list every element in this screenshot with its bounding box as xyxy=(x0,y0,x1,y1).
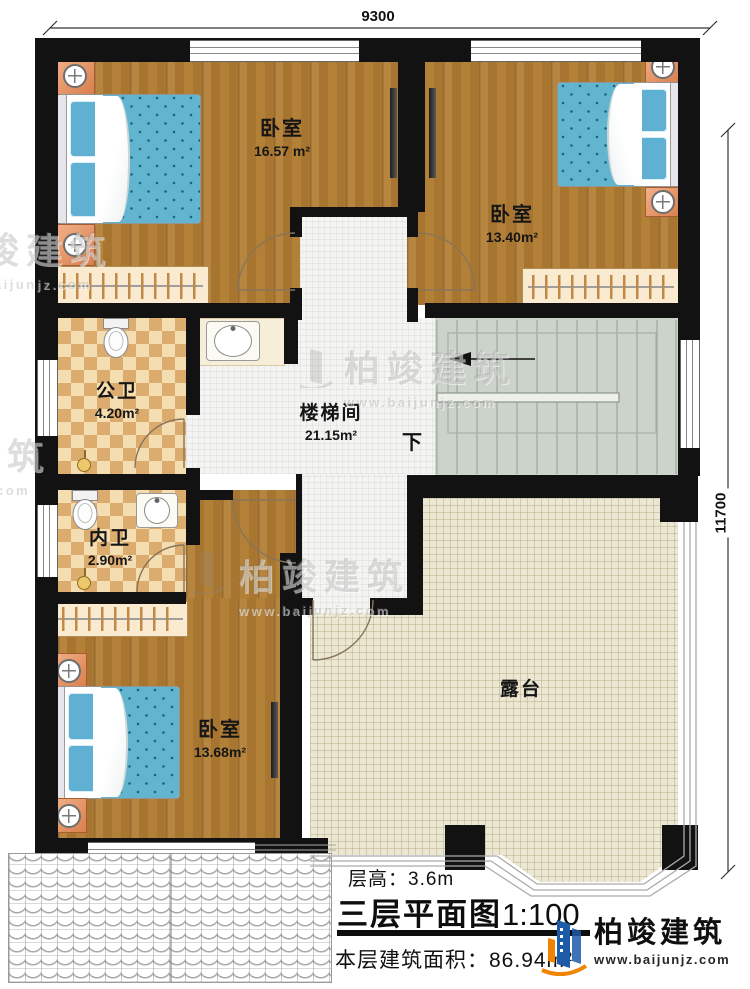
wall xyxy=(423,475,678,498)
room-name: 露台 xyxy=(500,674,542,701)
floor-area-label: 本层建筑面积：86.94m² xyxy=(335,944,573,974)
brand-name: 柏竣建筑 xyxy=(594,918,730,950)
tv-panel xyxy=(271,702,278,778)
wall xyxy=(425,303,678,318)
bed-headboard xyxy=(58,95,67,223)
room-label-public-bath: 公卫 4.20m² xyxy=(95,376,139,421)
wall xyxy=(35,303,300,318)
bed-blanket xyxy=(93,688,128,797)
brand-logo-icon xyxy=(540,918,588,981)
nightstand xyxy=(55,224,95,266)
lamp-icon xyxy=(646,188,679,216)
room-area: 16.57 m² xyxy=(254,143,310,159)
lamp-icon xyxy=(56,57,94,94)
room-label-bedroom3: 卧室 13.68m² xyxy=(194,713,246,760)
roof-ridge-line xyxy=(170,854,172,982)
wall xyxy=(407,207,418,237)
wall xyxy=(290,207,302,237)
window xyxy=(37,360,58,436)
sink-icon xyxy=(206,321,260,361)
room-name: 卧室 xyxy=(194,713,246,742)
floor-plan: 卧室 16.57 m² 卧室 13.40m² 公卫 4.20m² 楼梯间 21.… xyxy=(0,0,750,989)
sink-icon xyxy=(136,493,178,528)
bed xyxy=(557,82,680,187)
stair-direction-label: 下 xyxy=(402,426,422,455)
wall xyxy=(186,308,200,415)
wall xyxy=(407,288,418,322)
wall xyxy=(407,475,423,615)
room-area: 21.15m² xyxy=(299,427,362,443)
room-area: 2.90m² xyxy=(88,552,132,568)
tv-panel xyxy=(429,88,436,178)
room-name: 卧室 xyxy=(254,112,310,141)
bed xyxy=(57,94,201,224)
dimension-top: 9300 xyxy=(355,8,400,25)
plan-title-text: 三层平面图 xyxy=(337,897,502,932)
wall xyxy=(370,598,407,615)
toilet-icon xyxy=(100,318,132,360)
room-label-bedroom1: 卧室 16.57 m² xyxy=(254,112,310,159)
wall xyxy=(398,38,425,212)
room-name: 内卫 xyxy=(88,523,132,550)
wall xyxy=(186,468,200,545)
room-area: 13.68m² xyxy=(194,744,246,760)
window xyxy=(680,340,700,448)
pillar xyxy=(662,825,698,870)
floor-height-label: 层高：3.6m xyxy=(348,864,454,891)
floor-drain-icon xyxy=(77,458,91,472)
room-label-stairwell: 楼梯间 21.15m² xyxy=(299,398,362,443)
wall xyxy=(35,38,58,860)
room-label-inner-bath: 内卫 2.90m² xyxy=(88,523,132,568)
wall xyxy=(300,207,407,217)
floor-drain-icon xyxy=(77,576,91,590)
bed-blanket xyxy=(607,84,642,185)
room-name: 公卫 xyxy=(95,376,139,403)
wardrobe xyxy=(522,268,680,306)
room-area: 13.40m² xyxy=(486,229,538,245)
window xyxy=(190,40,359,62)
wall xyxy=(35,592,186,604)
bed xyxy=(55,686,180,799)
dimension-right: 11700 xyxy=(713,489,730,538)
wall xyxy=(35,474,186,490)
wardrobe xyxy=(53,601,188,637)
wardrobe xyxy=(53,266,209,306)
bed-blanket xyxy=(95,96,130,222)
room-label-bedroom2: 卧室 13.40m² xyxy=(486,198,538,245)
wall xyxy=(284,318,298,364)
wall xyxy=(296,598,313,615)
tv-panel xyxy=(390,88,397,178)
brand-logo: 柏竣建筑 www.baijunjz.com xyxy=(540,918,730,981)
window xyxy=(471,40,641,62)
brand-url: www.baijunjz.com xyxy=(594,952,730,967)
window xyxy=(37,505,58,577)
roof-tiles xyxy=(8,853,332,983)
hall-lower-floor xyxy=(302,474,407,615)
nightstand xyxy=(645,187,680,217)
room-label-terrace: 露台 xyxy=(500,674,542,701)
stairs-floor xyxy=(435,318,678,476)
lamp-icon xyxy=(56,225,94,265)
room-name: 楼梯间 xyxy=(299,398,362,425)
wall xyxy=(186,490,233,500)
hall-upper-floor xyxy=(300,212,407,318)
room-name: 卧室 xyxy=(486,198,538,227)
room-area: 4.20m² xyxy=(95,405,139,421)
